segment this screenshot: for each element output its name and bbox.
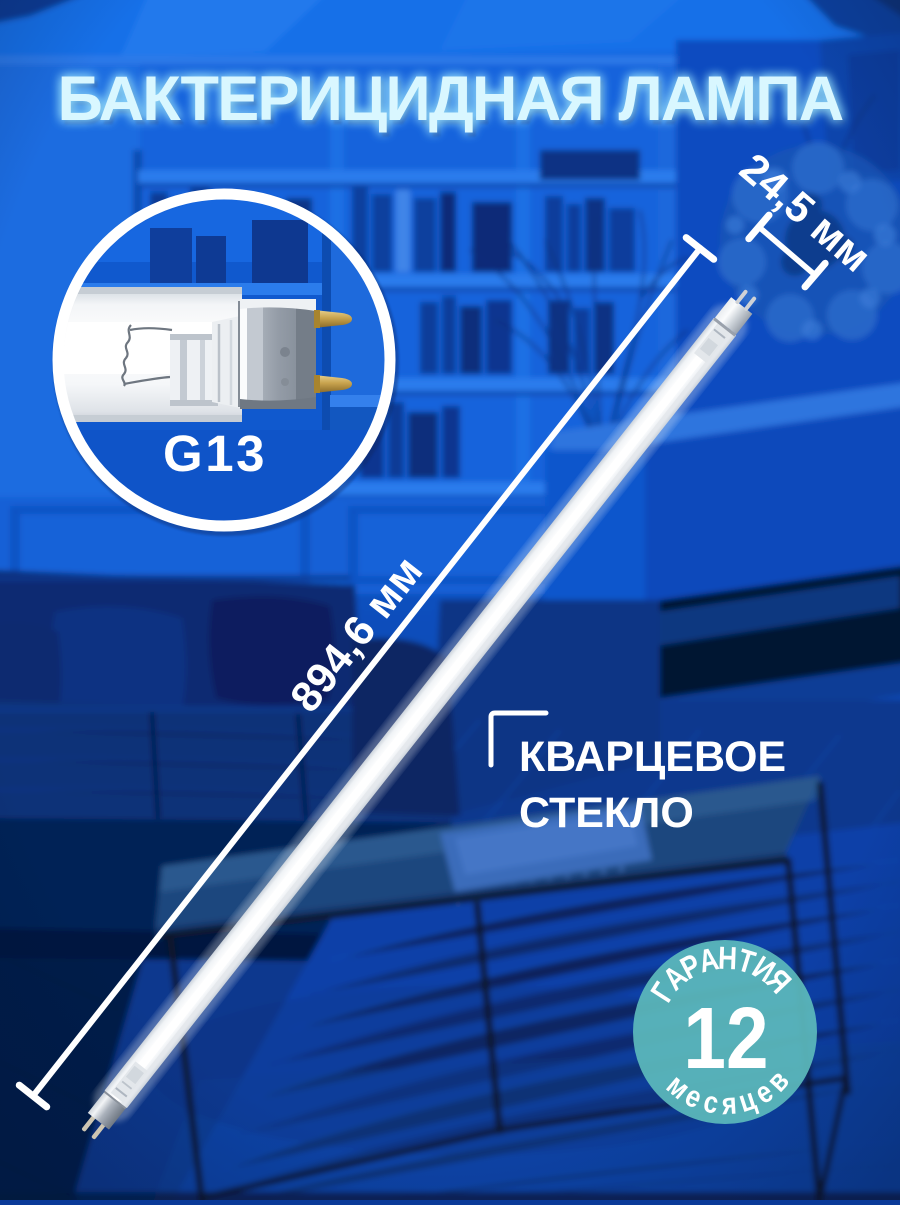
svg-text:КВАРЦЕВОЕ: КВАРЦЕВОЕ bbox=[519, 733, 786, 781]
svg-text:12: 12 bbox=[683, 990, 768, 1087]
svg-text:СТЕКЛО: СТЕКЛО bbox=[519, 789, 694, 837]
svg-text:G13: G13 bbox=[163, 425, 267, 482]
svg-text:я: я bbox=[720, 1086, 738, 1120]
svg-text:БАКТЕРИЦИДНАЯ ЛАМПА: БАКТЕРИЦИДНАЯ ЛАМПА bbox=[58, 64, 843, 134]
